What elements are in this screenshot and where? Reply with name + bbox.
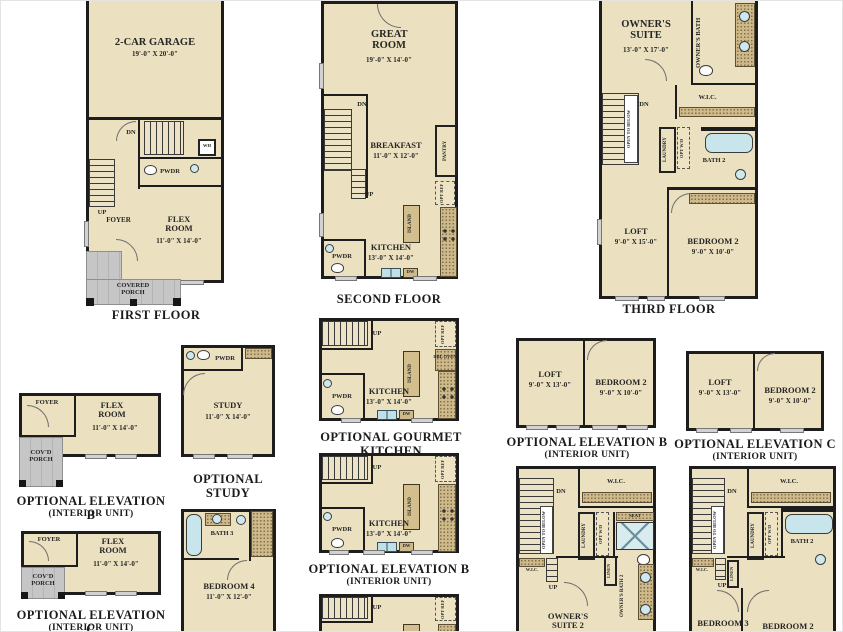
porch-post [58,592,65,599]
sink-icon [735,169,746,180]
great-room-dims: 19'-0" X 14'-0" [349,57,429,65]
wh-label: WH [198,144,216,149]
plan-opt-gourmet-kitchen: UP OPT REF DBL OVEN ISLAND KITCHEN 13'-0… [319,313,467,448]
closet-shelf [751,492,831,503]
window [115,454,137,459]
kitchen-sink-icon [381,268,401,278]
sink-icon [640,604,651,615]
owners-bath2-label: OWNER'S BATH 2 [620,564,625,628]
window [329,550,349,555]
stairs [322,321,368,346]
loft-label: LOFT [611,227,661,236]
plan-second-floor: GREAT ROOM 19'-0" X 14'-0" DN UP BREAKFA… [321,1,463,313]
stairs [322,456,368,480]
closet-shelf [245,348,272,359]
closet-shelf [689,193,755,204]
wall [319,621,373,623]
porch-label: COVERED PORCH [112,282,154,296]
closet-shelf [519,558,545,567]
plan-opt-elev-b-loft: LOFT 9'-0" X 13'-0" BEDROOM 2 9'-0" X 10… [516,336,664,464]
closet-shelf [582,492,652,503]
second-floor-caption: SECOND FLOOR [319,293,459,307]
pwdr-label: PWDR [322,393,362,400]
sink-icon [640,572,651,583]
study-label: STUDY [208,401,248,410]
breakfast-label: BREAKFAST [356,141,436,150]
pantry-label: PANTRY [443,131,448,171]
open-to-below-label: OPEN TO BELOW [713,510,718,550]
opt-wd-label: OPT W/D [599,516,604,552]
dbl-oven [435,349,456,371]
great-room-label: GREAT ROOM [371,29,407,52]
window [526,425,548,430]
owners-suite2-label: OWNER'S SUITE 2 [539,612,597,630]
window [696,428,718,433]
flex-room-dims: 11'-0" X 14'-0" [78,561,154,569]
window [180,280,204,285]
stairs-up [89,159,115,207]
sink-icon [323,512,332,521]
bedroom2-dims: 9'-0" X 10'-0" [586,390,656,398]
bath3-label: BATH 3 [209,530,235,537]
plan-owners-suite2-partial: W.I.C. DN OPEN TO BELOW LAUNDRY OPT W/D … [516,464,661,632]
plan-opt-elev-c-flex: FOYER FLEX ROOM 11'-0" X 14'-0" COV'D PO… [21,527,173,632]
wic-label: W.I.C. [588,478,644,485]
window [597,219,602,245]
window [335,276,357,281]
wall [667,187,669,297]
plan-bedroom3-partial: W.I.C. DN OPEN TO BELOW LAUNDRY OPT W/D … [689,464,839,632]
breakfast-dims: 11'-0" X 12'-0" [356,153,436,161]
loft-label: LOFT [525,370,575,379]
plan-third-floor: OWNER'S SUITE 13'-0" X 17'-0" OWNER'S BA… [599,1,761,319]
caption2: (INTERIOR UNIT) [505,450,669,460]
wic2-label: W.I.C. [687,568,717,573]
porch-label: COV'D PORCH [23,449,59,463]
window [699,296,725,301]
wic2-label: W.I.C. [516,568,548,573]
wall [138,185,222,187]
bedroom2-label: BEDROOM 2 [755,386,825,395]
foyer-label: FOYER [96,217,141,225]
wall [691,83,758,85]
dn-label: DN [120,129,142,136]
wall [781,512,783,556]
owners-suite-label: OWNER'S SUITE [621,19,671,42]
toilet-icon [331,405,344,415]
flex-room-label: FLEX ROOM [96,537,130,555]
floor-plan-sheet: 2-CAR GARAGE 19'-0" X 20'-0" DN WH PWDR … [0,0,843,632]
window [730,428,752,433]
bath2-label: BATH 2 [789,538,815,545]
wall [138,157,222,159]
dbl-oven-label: DBL OVEN [431,355,459,360]
sink-icon [739,11,750,22]
porch-post [86,298,94,306]
wall [583,338,585,428]
stairs-down [144,121,184,155]
wall [181,369,243,371]
first-floor-caption: FIRST FLOOR [86,309,226,323]
open-to-below-label: OPEN TO BELOW [627,100,632,158]
kitchen-counter [440,207,457,277]
plan-opt-study: PWDR STUDY 11'-0" X 14'-0" OPTIONAL STUD… [181,341,285,491]
bedroom2-dims: 9'-0" X 10'-0" [755,398,825,406]
bathtub-icon [785,514,833,534]
open-to-below-label: OPEN TO BELOW [542,510,547,550]
plan-opt-elev-c-loft: LOFT 9'-0" X 13'-0" BEDROOM 2 9'-0" X 10… [686,346,831,468]
flex-room-dims: 11'-0" X 14'-0" [144,238,214,246]
kitchen-sink-icon [377,410,397,420]
toilet-icon [331,538,344,548]
wall [321,239,365,241]
caption2: (INTERIOR UNIT) [13,509,169,519]
window [592,425,618,430]
window [411,418,433,423]
window [85,591,107,596]
opt-ref-label: OPT REF [440,183,445,203]
caption: OPTIONAL ELEVATION B [505,436,669,450]
opt-ref-box [435,181,455,205]
wall [747,466,749,508]
linen-label: LINEN [607,559,612,583]
caption: OPTIONAL ELEVATION C [670,438,840,452]
window [84,221,89,247]
plan-opt-elev-b-kitchen: UP OPT REF ISLAND KITCHEN 13'-0" X 14'-0… [319,449,467,591]
stairs-up [546,558,558,582]
caption: OPTIONAL STUDY [173,473,283,500]
island-label: ISLAND [408,210,413,238]
plan-opt-elev-b-flex: FOYER FLEX ROOM 11'-0" X 14'-0" COV'D PO… [19,389,171,524]
kitchen-island [403,624,420,632]
window [193,454,215,459]
wall [691,1,693,85]
bedroom4-label: BEDROOM 4 [189,582,269,591]
sink-icon [212,514,222,524]
wall [319,348,373,350]
window [319,63,324,89]
plan-first-floor: 2-CAR GARAGE 19'-0" X 20'-0" DN WH PWDR … [86,1,238,326]
bedroom2-dims: 9'-0" X 10'-0" [675,249,751,257]
stairs [322,597,368,619]
caption2: (INTERIOR UNIT) [670,452,840,462]
opt-wd-label: OPT W/D [680,131,685,165]
wall [667,187,758,190]
wall [319,373,365,375]
window [85,454,107,459]
window [413,276,437,281]
bathtub-icon [186,514,202,556]
kitchen-dims: 13'-0" X 14'-0" [351,255,431,263]
window [411,550,433,555]
kitchen-counter [438,624,456,632]
up-label: UP [359,191,379,198]
owners-suite-dims: 13'-0" X 17'-0" [606,47,686,55]
caption2: (INTERIOR UNIT) [15,623,167,632]
caption2: (INTERIOR UNIT) [307,577,471,587]
sink-icon [236,515,246,525]
up-label: UP [367,604,387,611]
kitchen-dims: 13'-0" X 14'-0" [349,399,429,407]
window [626,425,648,430]
bedroom4-dims: 11'-0" X 12'-0" [189,594,269,602]
bath2-label: BATH 2 [701,157,727,164]
wall [363,507,365,553]
sink-icon [323,379,332,388]
loft-label: LOFT [695,378,745,387]
porch-post [19,480,26,487]
loft-dims: 9'-0" X 13'-0" [518,382,582,390]
wic-label: W.I.C. [759,478,819,485]
stairs-up [715,558,726,580]
stove-icon [440,507,455,522]
garage-dims: 19'-0" X 20'-0" [115,51,195,59]
wall [701,127,758,131]
window [556,425,580,430]
wall [781,508,836,512]
stove-icon [440,385,455,400]
wall [319,507,365,509]
up-label: UP [367,464,387,471]
plan-bedroom4-partial: BATH 3 BEDROOM 4 11'-0" X 12'-0" [181,506,281,632]
covered-porch [86,251,122,281]
opt-ref-label: OPT REF [441,324,446,344]
wall [578,466,580,508]
wall [727,556,785,558]
opt-ref-label: OPT REF [441,459,446,479]
porch-post [56,480,63,487]
wic-label: W.I.C. [685,94,730,101]
porch-label: COV'D PORCH [25,573,61,587]
up-label: UP [367,330,387,337]
wall [181,558,239,560]
pwdr-label: PWDR [207,355,243,362]
porch-post [173,298,181,306]
bedroom2-label: BEDROOM 2 [671,237,755,246]
garage-label: 2-CAR GARAGE [105,37,205,48]
opt-wd-label: OPT W/D [768,516,773,552]
toilet-icon [699,65,713,76]
porch-post [21,592,28,599]
loft-dims: 9'-0" X 13'-0" [688,390,752,398]
window [227,454,253,459]
wall [321,94,367,96]
garage-room [86,1,224,121]
window [319,213,324,237]
window [780,428,804,433]
loft-dims: 9'-0" X 15'-0" [606,239,666,247]
seat-label: SEAT [620,514,650,519]
dn-label: DN [351,101,373,108]
laundry-label: LAUNDRY [663,132,668,168]
window [363,550,385,555]
wall [363,373,365,421]
wall [578,506,656,508]
bedroom2-label: BEDROOM 2 [748,622,828,631]
wall [675,85,677,119]
third-floor-caption: THIRD FLOOR [599,303,739,317]
sink-icon [190,164,199,173]
pwdr-label: PWDR [322,526,362,533]
window [341,418,361,423]
wall [249,509,251,561]
stove-icon [441,227,456,242]
dw-label: DW [399,412,414,417]
linen-label: LINEN [730,563,735,585]
flex-room-label: FLEX ROOM [162,215,196,233]
window [615,296,639,301]
opt-ref-label: OPT REF [441,599,446,619]
sink-icon [186,351,195,360]
kitchen-label: KITCHEN [351,243,431,252]
porch-post [130,299,137,306]
closet-shelf [251,511,273,557]
window [647,296,665,301]
toilet-icon [331,263,344,273]
sink-icon [739,41,750,52]
wall [364,239,366,279]
stairs [324,109,352,171]
plan-opt-elev-c-kitchen-partial: UP OPT REF [319,591,467,632]
caption: OPTIONAL ELEVATION B [307,563,471,577]
pwdr-label: PWDR [323,253,361,260]
sink-icon [325,244,334,253]
closet-shelf [679,107,755,117]
study-dims: 11'-0" X 14'-0" [188,414,268,422]
wall [613,512,615,558]
closet-shelf [692,558,714,567]
shower-icon [616,522,654,550]
flex-room-label: FLEX ROOM [95,401,129,419]
up-label: UP [90,209,114,216]
wall [319,482,373,484]
dw-label: DW [403,270,418,275]
dw-label: DW [399,544,414,549]
laundry-label: LAUNDRY [582,518,587,554]
wall [74,393,76,437]
flex-room-dims: 11'-0" X 14'-0" [77,425,153,433]
bedroom2-label: BEDROOM 2 [586,378,656,387]
laundry-label: LAUNDRY [751,518,756,554]
bathtub-icon [705,133,753,153]
sink-icon [815,554,826,565]
pwdr-label: PWDR [150,168,190,175]
up-label: UP [544,584,562,591]
window [115,591,137,596]
